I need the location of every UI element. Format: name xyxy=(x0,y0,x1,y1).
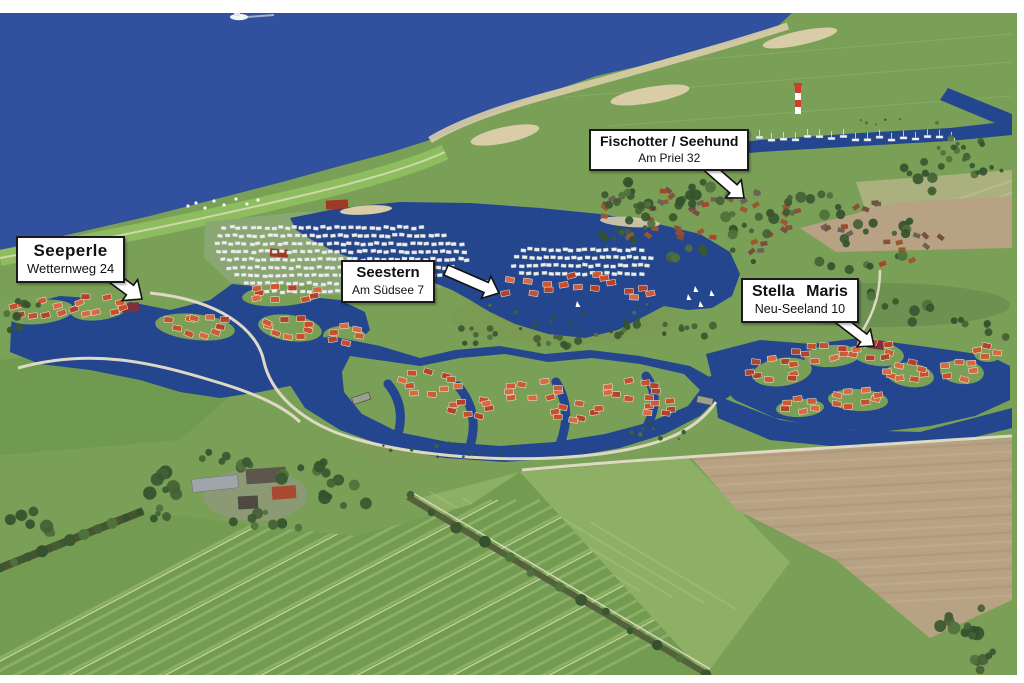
annotated-aerial-photo: Seeperle Wetternweg 24 Seestern Am Südse… xyxy=(0,0,1024,683)
callout-seeperle-name: Seeperle xyxy=(27,240,114,261)
callout-fischotter-name: Fischotter / Seehund xyxy=(600,133,738,151)
callout-stella-address: Neu-Seeland 10 xyxy=(752,302,848,318)
callout-seestern-name: Seestern xyxy=(352,264,424,283)
aerial-photo-canvas xyxy=(0,0,1024,683)
callout-stella-maris: Stella Maris Neu-Seeland 10 xyxy=(741,278,859,323)
callout-seestern: Seestern Am Südsee 7 xyxy=(341,260,435,303)
callout-seeperle: Seeperle Wetternweg 24 xyxy=(16,236,125,283)
callout-stella-name: Stella Maris xyxy=(752,282,848,302)
photo-content xyxy=(0,13,1020,683)
callout-fischotter-seehund: Fischotter / Seehund Am Priel 32 xyxy=(589,129,749,171)
lighthouse-icon xyxy=(794,83,802,114)
callout-seeperle-address: Wetternweg 24 xyxy=(27,261,114,277)
callout-fischotter-address: Am Priel 32 xyxy=(600,151,738,166)
callout-seestern-address: Am Südsee 7 xyxy=(352,283,424,298)
